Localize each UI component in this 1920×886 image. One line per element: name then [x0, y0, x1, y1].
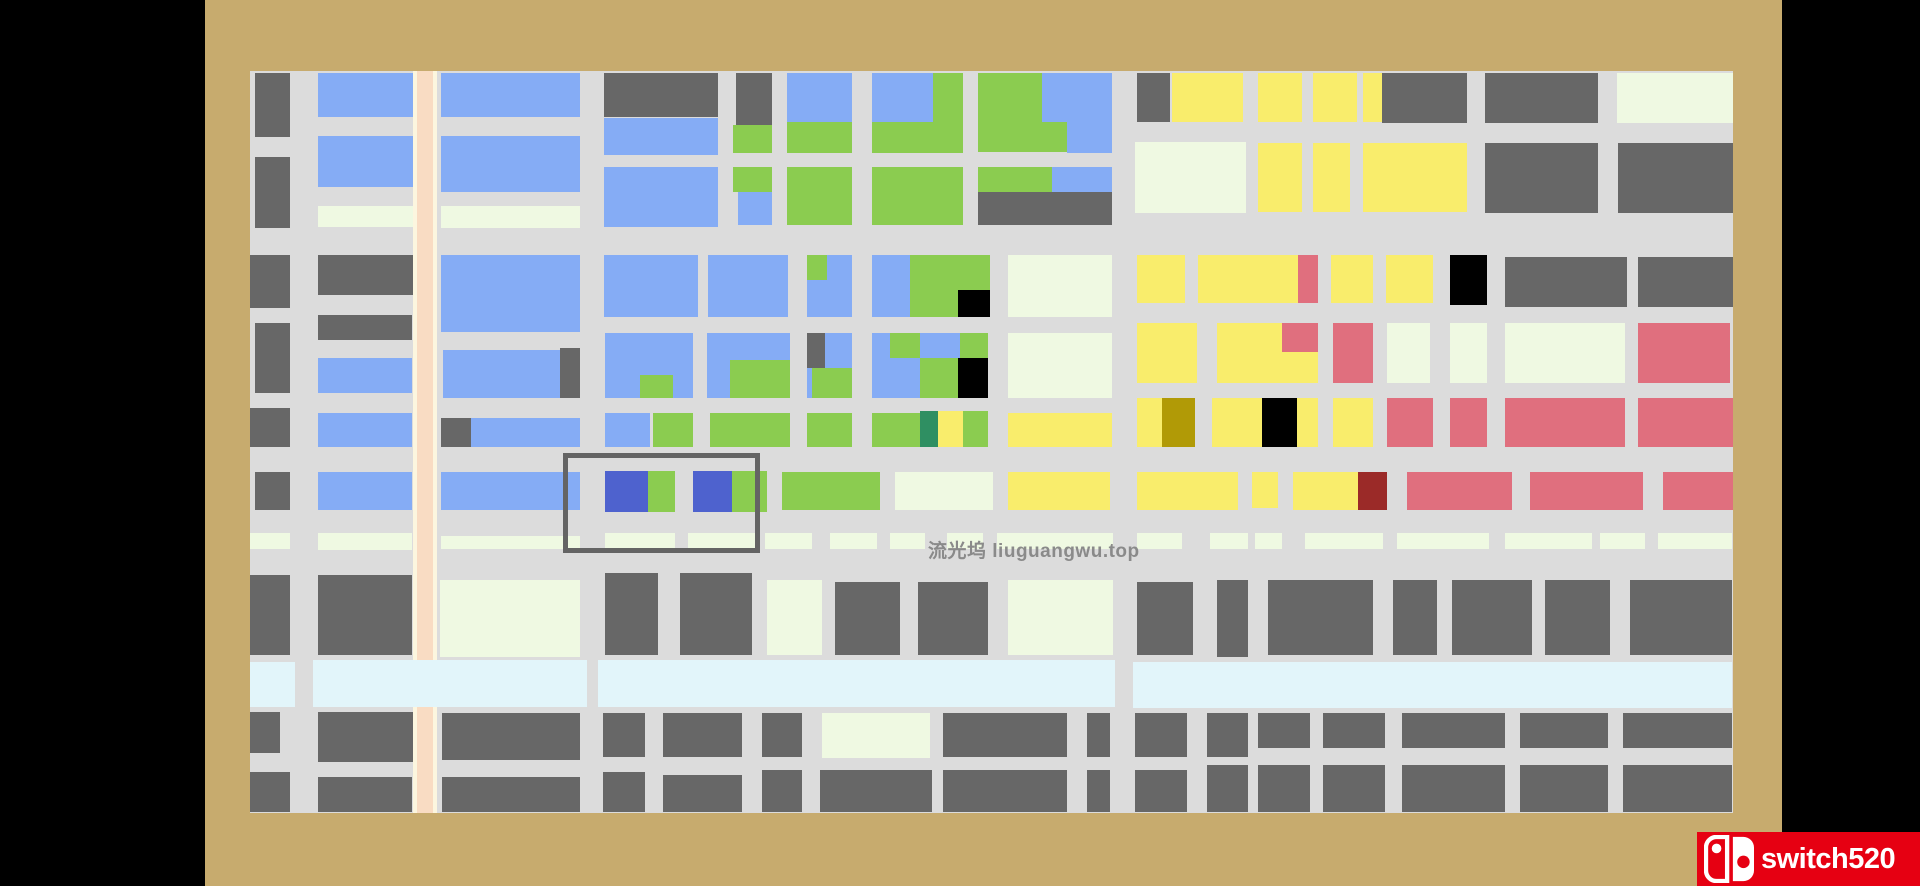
map-block [1505, 533, 1592, 549]
map-block [318, 358, 412, 393]
map-block [890, 533, 925, 549]
map-block [250, 575, 290, 655]
map-block [603, 713, 645, 757]
map-block [605, 413, 650, 447]
site-badge: switch520 [1697, 832, 1920, 886]
map-block [872, 73, 933, 122]
map-block [604, 118, 718, 155]
nintendo-switch-icon [1704, 835, 1756, 883]
map-block [1530, 472, 1643, 510]
map-block [255, 323, 290, 393]
map-block [441, 206, 580, 228]
map-block [1258, 143, 1302, 212]
map-block [1658, 533, 1732, 549]
map-block [830, 533, 877, 549]
map-block [1137, 398, 1162, 447]
map-block [872, 255, 913, 317]
map-block [1268, 580, 1373, 655]
city-map[interactable]: 流光坞 liuguangwu.top [250, 71, 1733, 813]
map-block [787, 167, 852, 225]
map-block [250, 533, 290, 549]
map-block [820, 770, 932, 812]
map-block [663, 775, 742, 812]
map-block [442, 713, 580, 760]
map-block [738, 192, 772, 225]
map-block [1087, 770, 1110, 812]
map-block [918, 582, 988, 655]
map-block [1358, 472, 1387, 510]
map-block [1630, 580, 1732, 655]
map-block [318, 533, 412, 550]
map-block [963, 411, 988, 447]
map-block [255, 73, 290, 137]
map-block [1505, 398, 1625, 447]
map-block [1623, 765, 1732, 812]
map-block [1258, 73, 1302, 122]
map-block [318, 712, 413, 762]
map-block [733, 167, 772, 192]
map-block [318, 777, 412, 812]
map-block [1397, 533, 1489, 549]
map-block [441, 255, 580, 332]
map-block [978, 192, 1112, 225]
map-block [313, 660, 587, 707]
map-block [762, 770, 802, 812]
map-block [1505, 323, 1625, 383]
map-block [1137, 323, 1197, 383]
map-block [1135, 713, 1187, 757]
map-block [1452, 580, 1532, 655]
map-block [1382, 73, 1467, 123]
map-block [1623, 713, 1732, 748]
map-block [1198, 255, 1298, 303]
map-block [1485, 143, 1598, 213]
watermark-text: 流光坞 liuguangwu.top [928, 536, 1140, 563]
map-block [441, 136, 580, 192]
map-block [598, 660, 1115, 707]
map-block [1617, 73, 1733, 123]
map-block [1323, 713, 1385, 748]
map-block [1282, 323, 1318, 352]
map-block [1638, 398, 1733, 447]
map-block [250, 772, 290, 812]
map-block [835, 582, 900, 655]
map-block [250, 255, 290, 308]
map-block [1333, 398, 1373, 447]
map-block [890, 333, 920, 358]
map-block [1407, 472, 1512, 510]
map-block [920, 358, 958, 398]
map-block [1520, 765, 1608, 812]
map-block [1450, 255, 1487, 305]
table-frame: 流光坞 liuguangwu.top [205, 0, 1782, 886]
map-block [943, 770, 1067, 812]
map-block [1638, 257, 1733, 307]
map-block [1331, 255, 1373, 303]
map-block [978, 167, 1052, 192]
map-block [787, 73, 852, 122]
map-block [1135, 770, 1187, 812]
map-block [1207, 713, 1248, 757]
map-block [640, 375, 673, 398]
map-block [943, 713, 1067, 757]
map-block [762, 713, 802, 757]
map-block [1298, 255, 1318, 303]
map-block [1386, 255, 1433, 303]
map-block [1137, 472, 1238, 510]
map-block [1293, 472, 1358, 510]
map-block [318, 413, 412, 447]
map-block [318, 255, 413, 295]
map-block [250, 408, 290, 447]
map-block [1305, 533, 1383, 549]
map-block [1212, 398, 1262, 447]
map-block [1450, 323, 1487, 383]
map-block [730, 360, 790, 398]
map-block [1042, 73, 1112, 122]
map-block [1258, 713, 1310, 748]
map-block [872, 167, 963, 225]
map-block [767, 580, 822, 655]
map-block [1008, 333, 1112, 398]
map-block [1363, 143, 1467, 212]
map-block [1313, 73, 1357, 122]
map-block [1520, 713, 1608, 748]
map-block [812, 368, 852, 398]
map-block [960, 333, 988, 358]
map-block [920, 411, 938, 447]
map-block [560, 348, 580, 398]
map-block [604, 167, 718, 227]
selection-rectangle[interactable] [563, 453, 760, 553]
map-block [1663, 472, 1733, 510]
map-block [1137, 582, 1193, 655]
map-block [1008, 255, 1112, 317]
map-block [1052, 167, 1112, 192]
map-block [733, 125, 772, 153]
site-badge-label: switch520 [1761, 843, 1895, 876]
map-block [1485, 73, 1598, 123]
map-block [1323, 765, 1385, 812]
game-screen: 流光坞 liuguangwu.top switch520 [0, 0, 1920, 886]
map-block [318, 575, 412, 655]
map-block [603, 772, 645, 812]
map-block [1387, 323, 1430, 383]
map-block [1262, 398, 1297, 447]
map-block [1087, 713, 1110, 757]
map-block [1172, 73, 1243, 122]
map-block [1162, 398, 1195, 447]
map-block [1638, 323, 1730, 383]
map-block [318, 206, 413, 227]
map-block [1618, 143, 1733, 213]
map-block [1137, 255, 1185, 303]
map-block [255, 157, 290, 228]
map-block [1393, 580, 1437, 655]
map-block [782, 472, 880, 510]
map-block [736, 73, 772, 125]
map-block [1008, 580, 1113, 655]
map-block [807, 333, 825, 368]
map-block [1135, 142, 1246, 213]
map-block [471, 418, 580, 447]
map-block [1333, 323, 1373, 383]
map-block [1313, 143, 1350, 212]
map-block [441, 536, 580, 549]
map-block [708, 255, 788, 317]
map-block [318, 136, 413, 187]
map-block [663, 713, 742, 757]
map-block [1297, 398, 1318, 447]
map-block [605, 573, 658, 655]
map-block [250, 662, 295, 707]
map-block [1450, 398, 1487, 447]
map-block [440, 580, 580, 657]
map-block [1008, 472, 1110, 510]
map-block [1255, 533, 1282, 549]
map-block [1545, 580, 1610, 655]
map-block [441, 73, 580, 117]
map-block [1008, 413, 1112, 447]
map-block [787, 122, 852, 153]
map-block [710, 413, 790, 447]
map-block [1402, 765, 1505, 812]
map-block [318, 472, 412, 510]
map-block [318, 73, 413, 117]
map-block [807, 255, 827, 280]
map-block [1402, 713, 1505, 748]
map-block [1133, 662, 1732, 708]
map-block [1210, 533, 1248, 549]
map-block [1363, 73, 1382, 122]
map-block [680, 573, 752, 655]
map-block [872, 413, 920, 447]
map-block [653, 413, 693, 447]
map-block [441, 472, 580, 510]
map-block [1137, 533, 1182, 549]
map-block [1258, 765, 1310, 812]
map-block [807, 413, 852, 447]
map-block [442, 777, 580, 812]
map-block [250, 712, 280, 753]
map-block [441, 418, 471, 447]
map-block [1217, 580, 1248, 657]
map-block [1207, 765, 1248, 812]
map-block [1600, 533, 1645, 549]
map-block [938, 411, 963, 447]
map-block [255, 472, 290, 510]
map-block [765, 533, 812, 549]
map-block [1387, 398, 1433, 447]
map-block [958, 290, 990, 317]
map-block [604, 73, 718, 117]
map-block [1067, 122, 1112, 153]
map-block [1505, 257, 1627, 307]
map-block [604, 255, 698, 317]
map-block [895, 472, 993, 510]
map-block [318, 315, 412, 340]
map-block [822, 713, 930, 758]
map-block [1252, 472, 1278, 508]
map-block [1137, 73, 1170, 122]
map-block [958, 358, 988, 398]
